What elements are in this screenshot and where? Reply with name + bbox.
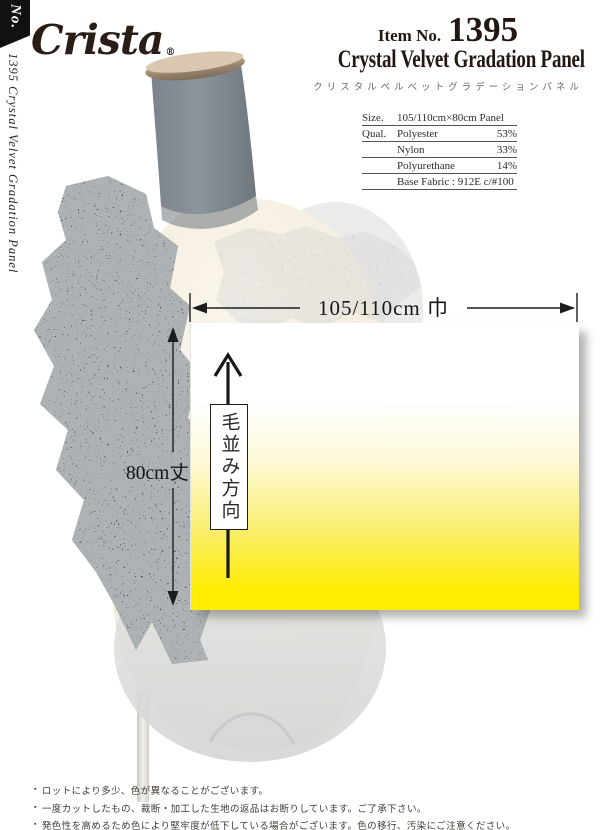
bullet-icon: ▪ <box>34 783 37 797</box>
spec-row-polyester: Qual. Polyester 53% <box>362 126 517 142</box>
registered-trademark-mark: ® <box>165 47 175 58</box>
footnote-item: ▪ 発色性を高めるため色により堅牢度が低下している場合がございます。色の移行、汚… <box>34 818 515 830</box>
item-no-label: Item No. <box>378 26 441 46</box>
bullet-icon: ▪ <box>34 801 37 815</box>
item-no-value: 1395 <box>448 12 518 47</box>
disclaimer-footnotes: ▪ ロットにより多少、色が異なることがございます。 ▪ 一度カットしたもの、裁断… <box>34 783 515 830</box>
bullet-icon: ▪ <box>34 818 37 830</box>
product-title-english: Crystal Velvet Gradation Panel <box>338 46 558 74</box>
brand-logo: Crista® <box>31 16 175 64</box>
brand-logo-text: Crista <box>31 16 163 64</box>
sidebar-vertical-title: 1395 Crystal Velvet Gradation Panel <box>5 53 20 273</box>
panel-width-label: 105/110cm 巾 <box>300 292 467 322</box>
spec-row-nylon: Nylon 33% <box>362 142 517 158</box>
spec-table: Size. 105/110cm×80cm Panel Qual. Polyest… <box>362 110 517 190</box>
spec-sheet-page: 105/110cm 巾 80cm丈 毛並み方向 No. 1395 Crystal… <box>0 0 615 830</box>
mannequin-neck <box>151 58 256 214</box>
spec-row-size: Size. 105/110cm×80cm Panel <box>362 110 517 126</box>
footnote-item: ▪ 一度カットしたもの、裁断・加工した生地の返品はお断りしています。ご了承下さい… <box>34 801 515 815</box>
product-title-japanese: クリスタルベルベットグラデーションパネル <box>303 79 593 93</box>
spec-row-polyurethane: Polyurethane 14% <box>362 158 517 174</box>
footnote-item: ▪ ロットにより多少、色が異なることがございます。 <box>34 783 515 797</box>
fabric-panel-diagram <box>190 323 579 610</box>
nap-direction-box: 毛並み方向 <box>210 404 248 530</box>
item-number-line: Item No. 1395 <box>303 12 593 47</box>
nap-direction-label: 毛並み方向 <box>220 412 239 522</box>
header-title-block: Item No. 1395 Crystal Velvet Gradation P… <box>303 12 593 93</box>
panel-height-label: 80cm丈 <box>126 456 189 485</box>
spec-row-base-fabric: Base Fabric : 912E c/#100 <box>362 174 517 190</box>
